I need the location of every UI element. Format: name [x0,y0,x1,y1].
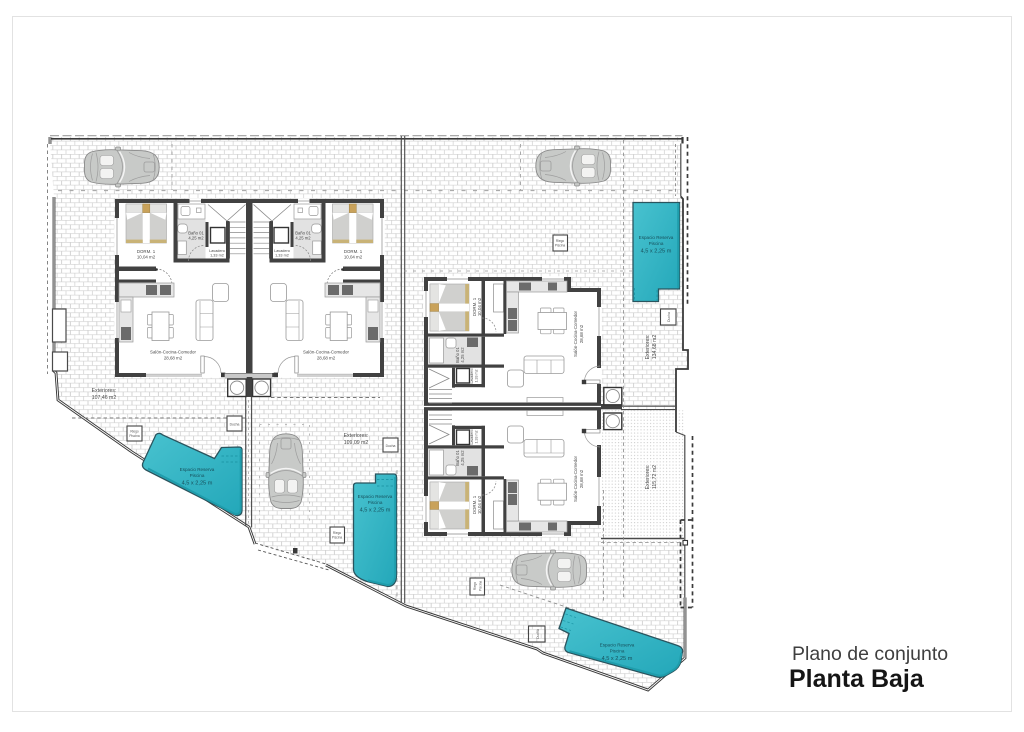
svg-text:Riego: Riego [333,531,342,535]
svg-text:Salón-Cocina-Comedor: Salón-Cocina-Comedor [573,311,578,357]
svg-text:Espacio Reserva: Espacio Reserva [358,494,393,499]
svg-text:28,68 m2: 28,68 m2 [317,356,336,361]
svg-text:Piscina: Piscina [368,500,383,505]
svg-text:4,25 m2: 4,25 m2 [460,347,465,363]
svg-text:28,68 m2: 28,68 m2 [579,469,584,488]
svg-text:4,5 x 2,25 m: 4,5 x 2,25 m [602,656,633,662]
svg-text:4,5 x 2,25 m: 4,5 x 2,25 m [641,249,672,255]
svg-text:107,46 m2: 107,46 m2 [92,395,117,401]
svg-text:4,5 x 2,25 m: 4,5 x 2,25 m [360,508,391,514]
svg-text:Piscina: Piscina [610,649,625,654]
svg-text:Piscina: Piscina [479,581,483,592]
svg-text:109,09 m2: 109,09 m2 [344,440,369,446]
svg-text:Salón-Cocina-Comedor: Salón-Cocina-Comedor [573,456,578,502]
svg-text:Exteriores:: Exteriores: [92,388,117,394]
svg-text:Lavadero: Lavadero [209,249,225,253]
svg-text:Planta Baja: Planta Baja [789,665,925,693]
svg-text:1,33 m2: 1,33 m2 [210,254,224,258]
svg-text:Salón-Cocina-Comedor: Salón-Cocina-Comedor [303,350,349,355]
svg-text:Lavadero: Lavadero [274,249,290,253]
svg-text:134,68 m2: 134,68 m2 [652,335,658,360]
svg-text:Exteriores:: Exteriores: [645,335,651,360]
svg-text:Lavadero: Lavadero [470,430,474,445]
svg-text:10,04 m2: 10,04 m2 [477,297,482,316]
svg-text:Espacio Reserva: Espacio Reserva [600,643,635,648]
svg-text:Ducha: Ducha [667,312,671,322]
svg-text:Exteriores:: Exteriores: [645,465,651,490]
svg-text:10,04 m2: 10,04 m2 [344,255,363,260]
svg-text:Riego: Riego [130,430,139,434]
svg-text:Exteriores:: Exteriores: [344,433,369,439]
svg-text:Salón-Cocina-Comedor: Salón-Cocina-Comedor [150,350,196,355]
svg-text:Piscina: Piscina [190,473,205,478]
svg-text:1,33 m2: 1,33 m2 [475,431,479,444]
svg-text:Ducha: Ducha [230,423,240,427]
svg-text:DORM. 1: DORM. 1 [344,249,363,254]
svg-text:Riego: Riego [556,239,565,243]
svg-text:Espacio Reserva: Espacio Reserva [639,235,674,240]
svg-text:10,04 m2: 10,04 m2 [137,255,156,260]
svg-text:Ducha: Ducha [536,629,540,639]
svg-text:115,72 m2: 115,72 m2 [652,465,658,489]
svg-text:Piscina: Piscina [332,536,343,540]
svg-text:Ducha: Ducha [386,444,396,448]
svg-text:Piscina: Piscina [129,434,140,438]
svg-text:28,68 m2: 28,68 m2 [164,356,183,361]
svg-text:DORM. 1: DORM. 1 [137,249,156,254]
svg-text:10,04 m2: 10,04 m2 [477,495,482,514]
svg-text:Lavadero: Lavadero [470,369,474,384]
svg-text:Plano de conjunto: Plano de conjunto [792,643,948,665]
svg-text:4,25 m2: 4,25 m2 [188,236,204,241]
svg-text:Piscina: Piscina [649,241,664,246]
svg-text:4,25 m2: 4,25 m2 [295,236,311,241]
svg-text:4,25 m2: 4,25 m2 [460,450,465,466]
svg-text:Riego: Riego [473,582,477,591]
svg-text:Espacio Reserva: Espacio Reserva [180,467,215,472]
svg-text:1,33 m2: 1,33 m2 [475,370,479,383]
svg-text:28,68 m2: 28,68 m2 [579,324,584,343]
svg-text:4,5 x 2,25 m: 4,5 x 2,25 m [182,481,213,487]
svg-text:1,33 m2: 1,33 m2 [275,254,289,258]
svg-text:Piscina: Piscina [555,244,566,248]
